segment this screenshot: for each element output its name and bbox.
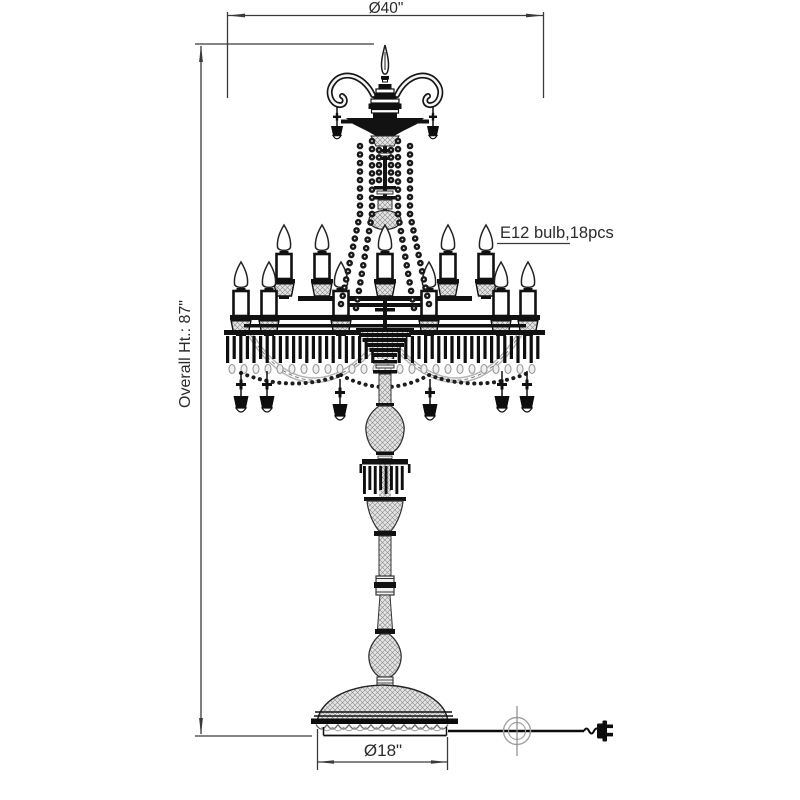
- dome-shell: [317, 685, 448, 723]
- bulb-spec-label: E12 bulb,18pcs: [500, 224, 614, 242]
- candle: [374, 225, 396, 299]
- arrow-right-icon: [431, 760, 448, 764]
- crown-tiers: [369, 84, 402, 119]
- finial-spire: [381, 45, 389, 82]
- candle: [273, 225, 295, 299]
- pendant-drop: [234, 371, 249, 412]
- bulb-icon: [422, 262, 435, 287]
- candle-sleeve: [315, 254, 330, 279]
- candle: [475, 225, 497, 299]
- arrow-left-icon: [228, 14, 246, 18]
- bobeche-cup: [312, 283, 332, 296]
- bulb-icon: [479, 225, 492, 250]
- top-diameter-label: Ø40": [369, 0, 404, 17]
- candle-sleeve: [277, 254, 292, 279]
- arrow-left-icon: [318, 760, 335, 764]
- drawing-canvas: Ø40" Overall Ht.: 87" E12 bulb,18pcs Ø18…: [0, 0, 800, 800]
- bulb-icon: [521, 262, 534, 287]
- dome-scallop-trim: [316, 725, 448, 731]
- candle-sleeve: [234, 291, 249, 316]
- overall-height-label: Overall Ht.: 87": [177, 300, 194, 408]
- candle-sleeve: [262, 291, 277, 316]
- chandelier: [224, 45, 613, 756]
- scroll-arm-left: [330, 76, 373, 106]
- bulb-icon: [262, 262, 275, 287]
- dimension-overall-height: Overall Ht.: 87": [177, 44, 374, 736]
- candle-sleeve: [494, 291, 509, 316]
- arrow-down-icon: [199, 718, 203, 735]
- candle: [437, 225, 459, 299]
- stem: [356, 328, 414, 686]
- bulb-icon: [441, 225, 454, 250]
- bulb-icon: [234, 262, 247, 287]
- bobeche-cup: [375, 283, 395, 296]
- bobeche-cup: [438, 283, 458, 296]
- dome-band: [311, 719, 458, 725]
- candle-sleeve: [521, 291, 536, 316]
- bulb-icon: [315, 225, 328, 250]
- candle-sleeve: [378, 254, 393, 279]
- scroll-arm-right: [397, 76, 440, 106]
- ring-band-plate: [362, 459, 408, 465]
- power-cord-assembly: [448, 706, 613, 756]
- candle: [311, 225, 333, 299]
- bulb-spec-callout: E12 bulb,18pcs: [497, 224, 614, 244]
- arrow-up-icon: [199, 45, 203, 62]
- stem-taper: [378, 595, 393, 629]
- stem-vase: [366, 406, 404, 452]
- stem-baluster: [367, 501, 403, 531]
- stem-neck: [379, 374, 391, 404]
- bulb-icon: [277, 225, 290, 250]
- pendant-drop: [520, 371, 535, 412]
- pendant-drop: [423, 379, 438, 420]
- arrow-right-icon: [526, 14, 544, 18]
- candle-sleeve: [479, 254, 494, 279]
- stem-column: [379, 536, 391, 576]
- base-diameter-label: Ø18": [364, 741, 402, 760]
- canopy-bowl: [341, 118, 429, 146]
- candle-sleeve: [441, 254, 456, 279]
- bulb-icon: [334, 262, 347, 287]
- candle-tier-upper: [273, 225, 497, 299]
- pendant-drop: [495, 371, 510, 412]
- chandelier-technical-drawing: Ø40" Overall Ht.: 87" E12 bulb,18pcs Ø18…: [0, 0, 800, 800]
- stem-teardrop: [369, 634, 401, 677]
- pendant-drop: [260, 371, 275, 412]
- plug-icon: [584, 721, 613, 742]
- pendant-drop: [333, 379, 348, 420]
- base-dome: [311, 685, 458, 736]
- bulb-icon: [494, 262, 507, 287]
